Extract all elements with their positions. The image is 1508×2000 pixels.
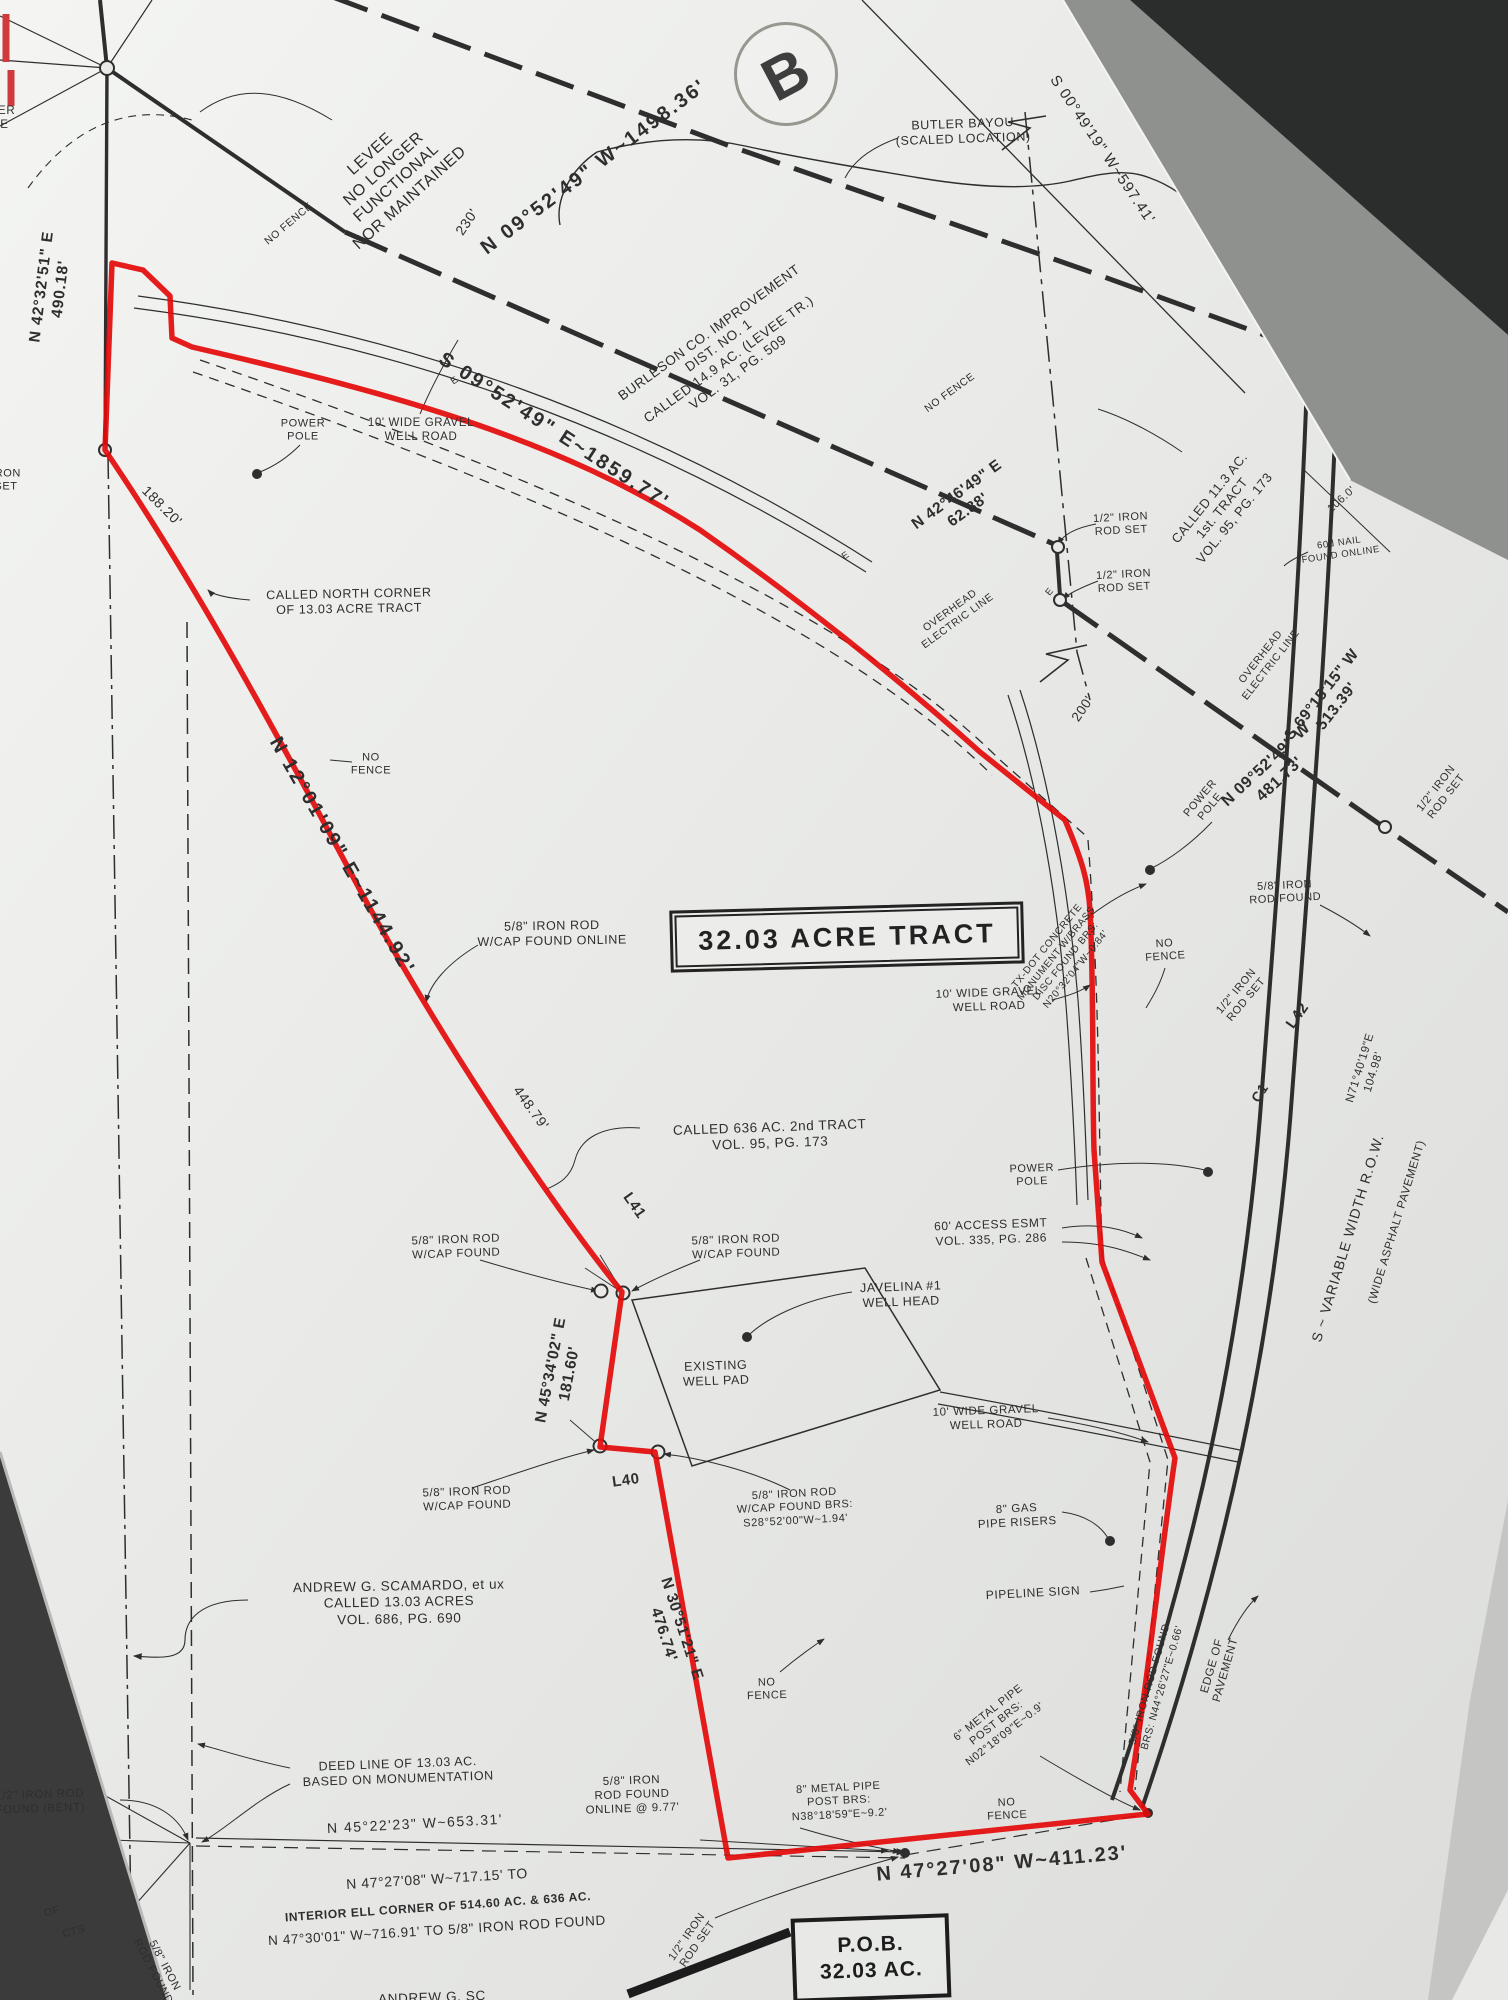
- power-pole-clipped: POWER POLE: [0, 104, 15, 132]
- bearing-s0049: S 00°49'19" W~597.41': [1045, 72, 1158, 228]
- bearing-n7140: N71°40'19"E 104.98': [1343, 1032, 1391, 1109]
- butler-bayou: BUTLER BAYOU (SCALED LOCATION): [895, 114, 1031, 149]
- rod-found-online-977: 5/8" IRON ROD FOUND ONLINE @ 9.77': [584, 1772, 679, 1817]
- bearing-n0952-main: N 09°52'49" W~1498.36': [476, 74, 712, 260]
- e-mark-3: E: [1043, 586, 1056, 599]
- access-esmt: 60' ACCESS ESMT VOL. 335, PG. 286: [934, 1215, 1048, 1248]
- no-fence-2: NO FENCE: [922, 370, 977, 415]
- line-l42: L42: [1283, 999, 1314, 1032]
- page-stamp-circle: B: [734, 22, 838, 126]
- fragment-of: OF: [43, 1904, 62, 1920]
- dim-230: 230': [452, 205, 482, 238]
- fragment-cts: CTS: [61, 1923, 86, 1941]
- called-north-corner: CALLED NORTH CORNER OF 13.03 ACRE TRACT: [266, 585, 432, 618]
- rod-found-bent: 1/2" IRON ROD FOUND (BENT): [0, 1786, 85, 1817]
- bearing-n0952-481: N 09°52'49" W 481.73': [1218, 719, 1328, 826]
- nail-60d: 60d NAIL FOUND ONLINE: [1299, 532, 1380, 566]
- no-fence-1: NO FENCE: [262, 200, 315, 248]
- bearing-n1201: N 12°01'09" E~1144.92': [264, 733, 420, 979]
- gravel-road-1: 10' WIDE GRAVEL WELL ROAD: [368, 416, 474, 444]
- bearing-n4727-411: N 47°27'08" W~411.23': [875, 1841, 1128, 1887]
- pob-label: P.O.B.: [837, 1931, 904, 1960]
- iron-rod-set-1: 1/2" IRON ROD SET: [1093, 510, 1149, 540]
- no-fence-5: NO FENCE: [986, 1796, 1028, 1825]
- overhead-electric-2: OVERHEAD ELECTRIC LINE: [1229, 619, 1302, 703]
- iron-rod-set-edge: 1/2" IRON ROD SET: [1414, 763, 1469, 823]
- andrew-fragment: ANDREW G. SC: [378, 1988, 486, 2000]
- called-636: CALLED 636 AC. 2nd TRACT VOL. 95, PG. 17…: [673, 1116, 868, 1156]
- gravel-road-2: 10' WIDE GRAVEL WELL ROAD: [935, 984, 1042, 1016]
- power-pole-3: POWER POLE: [1009, 1162, 1054, 1190]
- curve-c1: C1: [1248, 1080, 1273, 1105]
- edge-of-pavement: EDGE OF PAVEMENT: [1196, 1632, 1241, 1704]
- line-l41: L41: [619, 1189, 650, 1222]
- deed-line-note: DEED LINE OF 13.03 AC. BASED ON MONUMENT…: [302, 1753, 494, 1790]
- iron-rod-set-l42: 1/2" IRON ROD SET: [1214, 966, 1270, 1025]
- rod-cap-found-brs: 5/8" IRON ROD W/CAP FOUND BRS: S28°52'00…: [736, 1485, 854, 1531]
- no-fence-4: NO FENCE: [746, 1676, 787, 1704]
- no-fence-right: NO FENCE: [1144, 936, 1186, 966]
- bearing-n4246: N 42°46'49" E 62.88': [909, 456, 1018, 549]
- rod-cap-found-1: 5/8" IRON ROD W/CAP FOUND: [411, 1231, 501, 1262]
- survey-plat-photo: POWER POLEN 42°32'51" E 490.18'LEVEE NO …: [0, 0, 1508, 2000]
- tract-title: 32.03 ACRE TRACT: [674, 907, 1019, 968]
- power-pole-1: POWER POLE: [281, 418, 326, 445]
- rod-found-bottom-left: 5/8" IRON ROD FOUND: [129, 1931, 186, 2000]
- javelina-well-head: JAVELINA #1 WELL HEAD: [860, 1278, 942, 1311]
- rod-cap-found-3: 5/8" IRON ROD W/CAP FOUND: [422, 1483, 512, 1514]
- line-l40: L40: [611, 1470, 641, 1492]
- gravel-road-3: 10' WIDE GRAVEL WELL ROAD: [932, 1402, 1039, 1434]
- e-mark-2: E: [840, 549, 852, 562]
- called-113: CALLED 11.3 AC. 1st. TRACT VOL. 95, PG. …: [1168, 449, 1276, 566]
- iron-rod-set-pob: 1/2" IRON ROD SET: [666, 1911, 720, 1972]
- pipeline-sign: PIPELINE SIGN: [985, 1583, 1080, 1603]
- bearing-n4522: N 45°22'23" W~653.31': [327, 1811, 504, 1837]
- iron-set-left: IRON SET: [0, 468, 21, 495]
- bearing-n3051: N 30°51'21" E 476.74': [638, 1575, 707, 1688]
- pob-box: P.O.B. 32.03 AC.: [791, 1913, 952, 2000]
- dim-44879: 448.79': [509, 1083, 552, 1133]
- rod-cap-online: 5/8" IRON ROD W/CAP FOUND ONLINE: [477, 917, 627, 950]
- power-pole-2: POWER POLE: [1181, 777, 1230, 828]
- page-stamp-letter: B: [751, 33, 822, 114]
- metal-pipe-6: 6" METAL PIPE POST BRS: N02°18'09"E~0.9': [947, 1679, 1047, 1770]
- bearing-n4727-717: N 47°27'08" W~717.15' TO: [346, 1865, 529, 1893]
- no-fence-3: NO FENCE: [351, 752, 391, 779]
- levee-note: LEVEE NO LONGER FUNCTIONAL NOR MAINTAINE…: [310, 98, 471, 254]
- pob-acreage: 32.03 AC.: [820, 1956, 924, 1986]
- gas-pipe-risers: 8" GAS PIPE RISERS: [977, 1500, 1057, 1532]
- rod-cap-found-2: 5/8" IRON ROD W/CAP FOUND: [691, 1231, 781, 1262]
- dim-200: 200': [1068, 693, 1097, 725]
- row-note: S ~ VARIABLE WIDTH R.O.W.: [1308, 1132, 1388, 1344]
- burleson-note: BURLESON CO. IMPROVEMENT DIST. NO. 1 CAL…: [615, 261, 832, 444]
- labels-layer: POWER POLEN 42°32'51" E 490.18'LEVEE NO …: [0, 0, 1508, 2000]
- tract-title-box: 32.03 ACRE TRACT: [669, 901, 1025, 972]
- bearing-n4534: N 45°34'02" E 181.60': [532, 1316, 590, 1428]
- dim-18820: 188.20': [138, 482, 185, 529]
- iron-rod-set-2: 1/2" IRON ROD SET: [1096, 567, 1152, 597]
- bearing-n4232: N 42°32'51" E 490.18': [26, 230, 77, 346]
- dim-106: 106.0': [1325, 484, 1359, 516]
- iron-rod-found-58: 5/8" IRON ROD FOUND: [1248, 878, 1321, 909]
- overhead-electric-1: OVERHEAD ELECTRIC LINE: [912, 580, 997, 651]
- metal-pipe-8: 8" METAL PIPE POST BRS: N38°18'59"E~9.2': [790, 1779, 888, 1824]
- scamardo-note: ANDREW G. SCAMARDO, et ux CALLED 13.03 A…: [293, 1576, 505, 1629]
- rod-found-brs: 5/8" IRON ROD FOUND BRS: N44°26'27"E~0.6…: [1126, 1621, 1186, 1752]
- existing-well-pad: EXISTING WELL PAD: [682, 1358, 750, 1391]
